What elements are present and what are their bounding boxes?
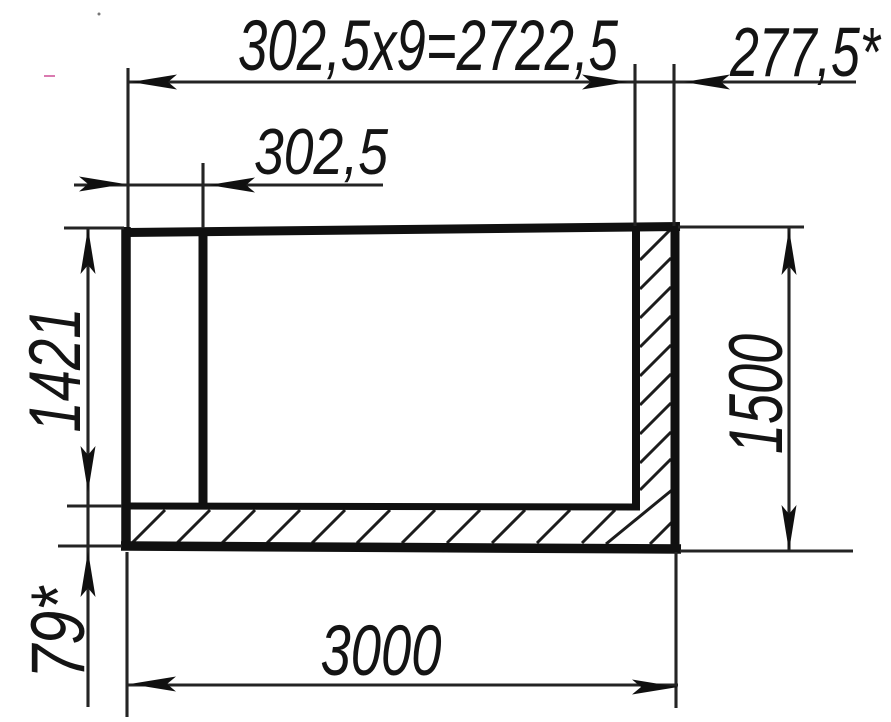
- svg-text:79*: 79*: [16, 585, 101, 679]
- svg-text:1500: 1500: [714, 334, 799, 454]
- svg-text:302,5x9=2722,5: 302,5x9=2722,5: [238, 7, 618, 86]
- svg-text:3000: 3000: [321, 612, 442, 691]
- svg-text:1421: 1421: [15, 308, 96, 433]
- svg-text:302,5: 302,5: [254, 115, 389, 188]
- svg-text:277,5*: 277,5*: [729, 13, 882, 91]
